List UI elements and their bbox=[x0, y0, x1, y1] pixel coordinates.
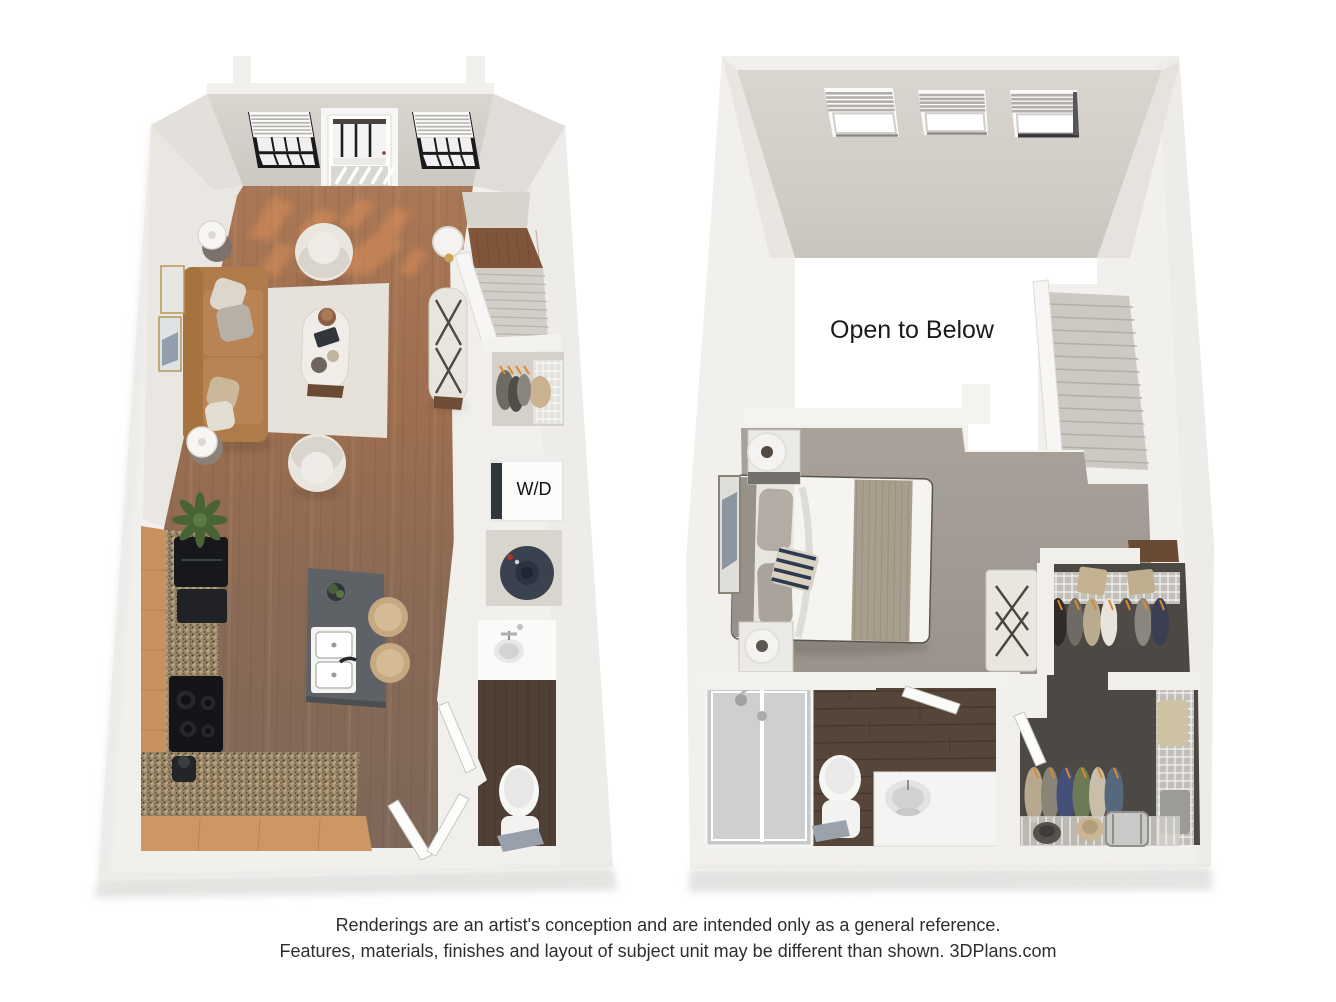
svg-text:Features, materials, finishes: Features, materials, finishes and layout… bbox=[279, 941, 1056, 961]
svg-text:W/D: W/D bbox=[517, 479, 552, 499]
svg-text:Open to Below: Open to Below bbox=[830, 316, 995, 344]
svg-text:Renderings are an artist's con: Renderings are an artist's conception an… bbox=[336, 915, 1001, 935]
